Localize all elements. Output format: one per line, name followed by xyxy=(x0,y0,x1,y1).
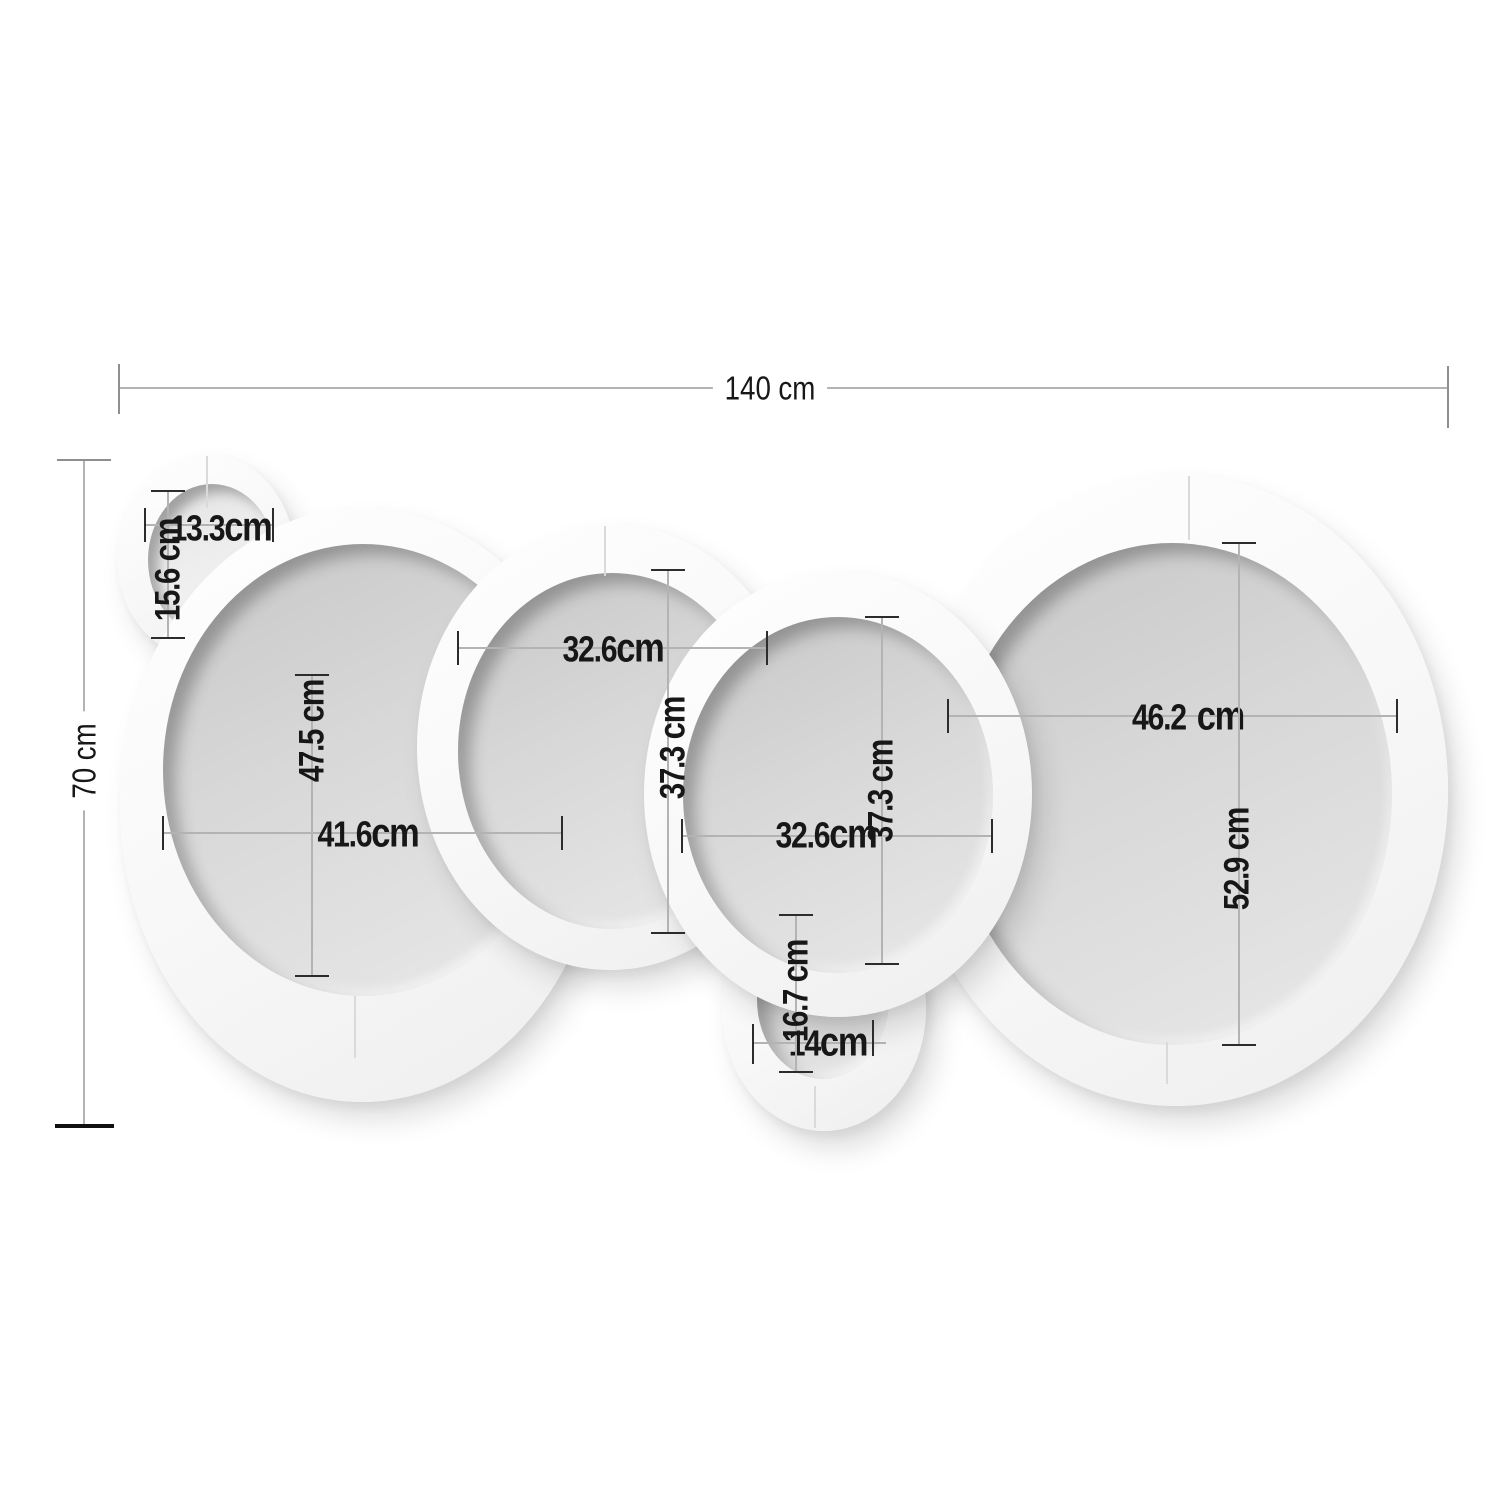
dim-label-overall-width: 140cm xyxy=(713,368,827,409)
dim-label-c1-height: 15.6cm xyxy=(149,519,186,621)
dim-tick xyxy=(991,819,993,853)
dim-label-c2-width: 41.6cm xyxy=(317,813,418,854)
dim-label-c4-height: 37.3cm xyxy=(862,740,899,842)
dim-tick xyxy=(1447,366,1449,428)
frame-seam xyxy=(604,526,606,576)
dim-tick xyxy=(55,1124,114,1128)
dim-tick xyxy=(272,508,274,542)
dim-tick xyxy=(681,819,683,853)
dim-tick xyxy=(766,631,768,665)
dim-tick xyxy=(752,1024,754,1064)
frame-seam xyxy=(354,996,356,1058)
dim-label-c2-height: 47.5cm xyxy=(293,680,330,782)
dim-tick xyxy=(865,963,899,965)
dim-label-c6-height: 16.7cm xyxy=(777,940,814,1042)
dim-line-c5-height xyxy=(1238,543,1240,1046)
dim-tick xyxy=(872,1020,874,1056)
mirror-glass-middle-2 xyxy=(683,617,993,973)
dim-label-c3-width: 32.6cm xyxy=(562,628,663,669)
frame-seam xyxy=(1188,476,1190,540)
dim-tick xyxy=(1222,1044,1256,1046)
dim-tick xyxy=(651,932,685,934)
dim-tick xyxy=(118,364,120,414)
dim-tick xyxy=(151,637,185,639)
dim-tick xyxy=(162,816,164,850)
dim-tick xyxy=(57,459,111,461)
dim-tick xyxy=(779,1071,813,1073)
dim-tick xyxy=(151,490,185,492)
dim-tick xyxy=(779,914,813,916)
dim-tick xyxy=(295,674,329,676)
frame-seam xyxy=(814,1086,816,1128)
dim-label-c5-width: 46.2cm xyxy=(1132,696,1244,737)
dim-tick xyxy=(295,975,329,977)
frame-seam xyxy=(1166,1042,1168,1084)
mirror-dimension-diagram: 140cm 70cm 13.3cm 15.6cm 41.6cm 47.5cm 3… xyxy=(0,0,1500,1500)
dim-tick xyxy=(457,631,459,665)
dim-tick xyxy=(651,569,685,571)
dim-label-overall-height: 70cm xyxy=(64,712,105,811)
dim-tick xyxy=(1396,699,1398,733)
dim-tick xyxy=(1222,542,1256,544)
dim-label-c3-height: 37.3cm xyxy=(654,697,691,799)
dim-tick xyxy=(561,816,563,850)
frame-seam xyxy=(206,456,208,508)
dim-tick xyxy=(947,699,949,733)
dim-tick xyxy=(865,616,899,618)
dim-label-c5-height: 52.9cm xyxy=(1218,808,1255,910)
